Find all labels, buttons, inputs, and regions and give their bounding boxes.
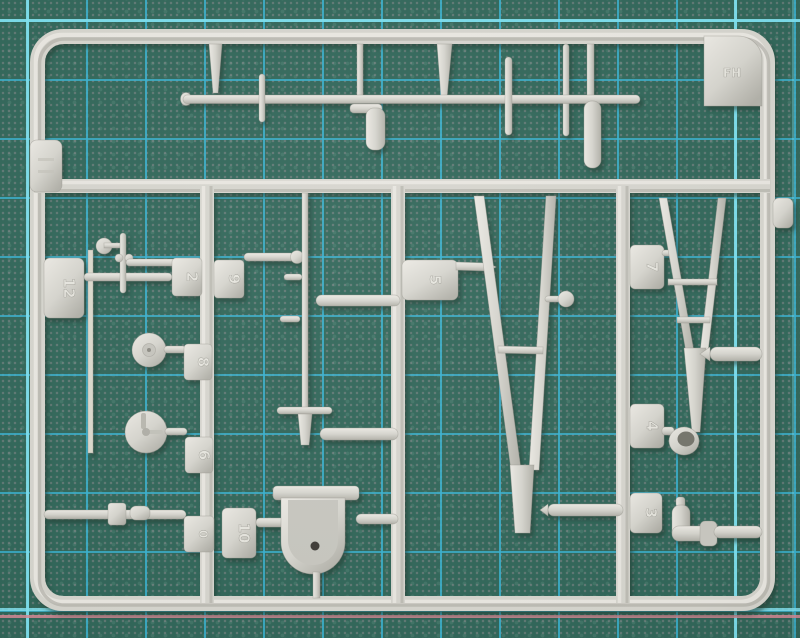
photo-vignette bbox=[0, 0, 800, 638]
cutting-mat-photo: FH 12 bbox=[0, 0, 800, 638]
